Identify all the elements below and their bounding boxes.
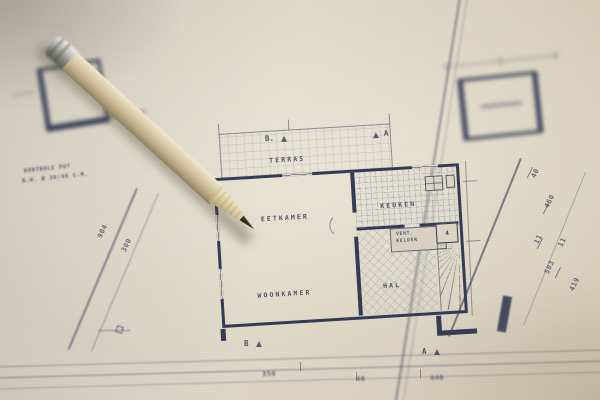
dimension-tick xyxy=(300,362,301,371)
living-room-label: WOONKAMER xyxy=(257,289,311,299)
section-marker-triangle xyxy=(434,349,440,355)
dimension-label: 11 xyxy=(558,237,568,249)
dimension-line xyxy=(444,54,559,67)
extension-tick xyxy=(467,240,481,242)
dimension-tick xyxy=(98,330,130,331)
sink-fixture xyxy=(445,175,455,189)
fixture-number: 4 xyxy=(445,229,449,236)
dimension-label: 11 xyxy=(534,234,544,246)
staircase xyxy=(437,242,464,310)
door-swing-arc xyxy=(329,213,354,238)
extension-tick xyxy=(389,113,391,124)
fixture-box: 4 xyxy=(435,222,458,243)
section-marker-triangle xyxy=(373,132,379,138)
dimension-label: 350 xyxy=(262,371,276,378)
window-opening xyxy=(218,269,223,299)
dimension-tick xyxy=(420,369,421,378)
stove-fixture xyxy=(425,175,444,191)
section-marker-b-top: B. xyxy=(265,134,274,142)
entrance-wall xyxy=(437,328,477,335)
section-marker-b-bottom: B xyxy=(244,340,249,348)
extension-tick xyxy=(218,124,220,135)
hall-label: HAL xyxy=(383,282,401,290)
dimension-label: 460 xyxy=(544,194,556,210)
dimension-label: 440 xyxy=(430,375,444,382)
dimension-label: 503 xyxy=(544,260,556,276)
section-marker-a-top: A xyxy=(384,129,389,137)
window-opening xyxy=(282,172,312,177)
exterior-wall-stub xyxy=(220,329,226,341)
dimension-label: 300 xyxy=(121,238,133,254)
dimension-label: 40 xyxy=(531,168,541,180)
section-marker-a-bottom: A xyxy=(422,348,427,356)
dimension-label: 419 xyxy=(569,277,581,293)
section-marker-triangle xyxy=(281,136,287,142)
fragment-tick xyxy=(12,91,34,95)
dining-room-label: EETKAMER xyxy=(261,213,309,222)
dimension-tick xyxy=(555,267,561,278)
extension-tick xyxy=(463,180,477,182)
extension-tick xyxy=(288,120,290,131)
dimension-label: 904 xyxy=(97,224,109,240)
section-marker-triangle xyxy=(256,341,262,347)
terrace-label: TERRAS xyxy=(269,156,305,165)
blueprint-photo: 904 300 KONTROLE PUT N.W. Ø 30/40 C.M. T… xyxy=(0,0,600,400)
vent-label-line1: VENT. xyxy=(396,231,414,238)
dimension-label: 40 xyxy=(356,376,366,383)
